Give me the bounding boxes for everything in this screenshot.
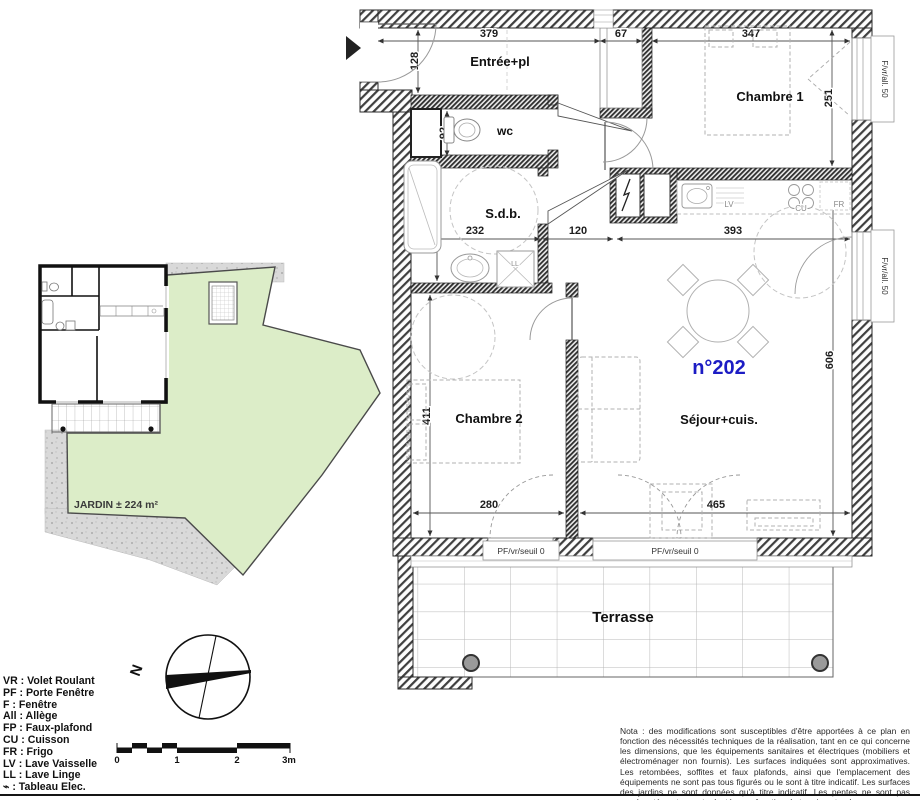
window-right-mid (852, 232, 872, 320)
sofa-icon (578, 357, 640, 462)
window-right-top (852, 38, 872, 120)
page-bottom-rule (0, 794, 920, 796)
armchair-icon (650, 484, 712, 538)
utility-cabinet (644, 174, 670, 217)
legend-item: ⌁ : Tableau Elec. (3, 782, 97, 794)
room-label-sejour: Séjour+cuis. (680, 412, 758, 427)
scale-tick-3: 3m (282, 755, 296, 766)
window-bottom-right-label: PF/vr/seuil 0 (651, 546, 699, 556)
washing-machine-icon (497, 251, 534, 287)
dim-chambre2-height: 411 (421, 407, 433, 425)
top-wall-opening (594, 10, 613, 28)
room-label-sdb: S.d.b. (485, 206, 520, 221)
unit-number: n°202 (692, 357, 746, 379)
garden-label: JARDIN ± 224 m² (74, 499, 158, 511)
bathtub-icon (404, 161, 441, 253)
window-right-mid-label: F/vr/all. 50 (880, 257, 889, 295)
scale-bar: 0 1 2 3m (100, 738, 310, 768)
scale-blocks (117, 743, 290, 753)
dim-chambre2-width: 280 (480, 499, 498, 511)
entry-door-swing (378, 24, 436, 82)
kitchen-icons (677, 180, 852, 214)
scale-tick-0: 0 (114, 755, 119, 766)
room-label-chambre1: Chambre 1 (736, 89, 803, 104)
room-label-chambre2: Chambre 2 (455, 411, 522, 426)
dim-entree-width: 379 (480, 28, 498, 40)
dim-placard-width: 67 (615, 28, 627, 40)
site-plan: JARDIN ± 224 m² (30, 255, 390, 600)
nota-text: Nota : des modifications sont susceptibl… (620, 726, 910, 800)
scale-tick-1: 1 (174, 755, 180, 766)
tv-console-icon (747, 500, 820, 530)
dim-sejour-width: 465 (707, 499, 725, 511)
dim-sdb-width: 232 (466, 225, 484, 237)
bed-chambre1-icon (705, 26, 790, 135)
chambre2-door-swing (530, 298, 572, 340)
dim-cuisine-width: 393 (724, 225, 742, 237)
duct-niche (411, 109, 441, 157)
scale-tick-2: 2 (234, 755, 239, 766)
dim-hall-width: 120 (569, 225, 587, 237)
appliance-label-fr: FR (834, 200, 845, 209)
windows: F/vr/all. 50 F/vr/all. 50 PF/vr/seuil 0 … (411, 36, 894, 567)
entry-closet (600, 28, 642, 108)
north-label: N (127, 662, 147, 678)
room-label-entree: Entrée+pl (470, 54, 530, 69)
appliance-label-cu: CU (795, 204, 807, 213)
appliance-label-ll: LL (511, 261, 519, 268)
compass: N (125, 608, 295, 753)
appliance-label-lv: LV (724, 200, 734, 209)
entry-arrow-icon (346, 36, 361, 60)
mini-plan (40, 266, 169, 432)
terrace-drain-icon (812, 655, 828, 671)
washbasin-icon (451, 254, 489, 282)
terrace-drain-icon (463, 655, 479, 671)
legend: VR : Volet Roulant PF : Porte Fenêtre F … (3, 676, 97, 794)
dim-entree-height: 128 (409, 52, 421, 70)
floor-plan: F/vr/all. 50 F/vr/all. 50 PF/vr/seuil 0 … (340, 0, 920, 700)
window-bottom-left-label: PF/vr/seuil 0 (497, 546, 545, 556)
dim-sejour-height: 606 (824, 351, 836, 369)
room-label-terrasse: Terrasse (592, 609, 653, 626)
room-label-wc: wc (496, 124, 513, 138)
floorplan-page: F/vr/all. 50 F/vr/all. 50 PF/vr/seuil 0 … (0, 0, 920, 800)
window-right-top-label: F/vr/all. 50 (880, 60, 889, 98)
window-mid-swing (795, 237, 852, 294)
toilet-icon (444, 117, 480, 143)
entry-opening (360, 22, 378, 82)
garden-shed-icon (209, 282, 237, 324)
mini-terrace (52, 404, 160, 432)
dim-chambre1-width: 347 (742, 28, 760, 40)
dining-table-icon (667, 264, 768, 357)
